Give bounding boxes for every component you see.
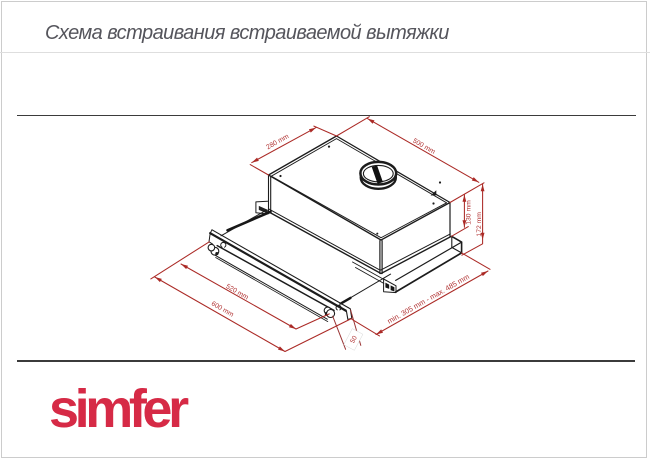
svg-text:520 mm: 520 mm [225, 283, 250, 301]
svg-text:130 mm: 130 mm [466, 200, 473, 225]
svg-text:min. 305 mm - max. 485 mm: min. 305 mm - max. 485 mm [386, 272, 471, 326]
svg-text:500 mm: 500 mm [411, 138, 436, 157]
svg-text:172 mm: 172 mm [476, 212, 483, 237]
